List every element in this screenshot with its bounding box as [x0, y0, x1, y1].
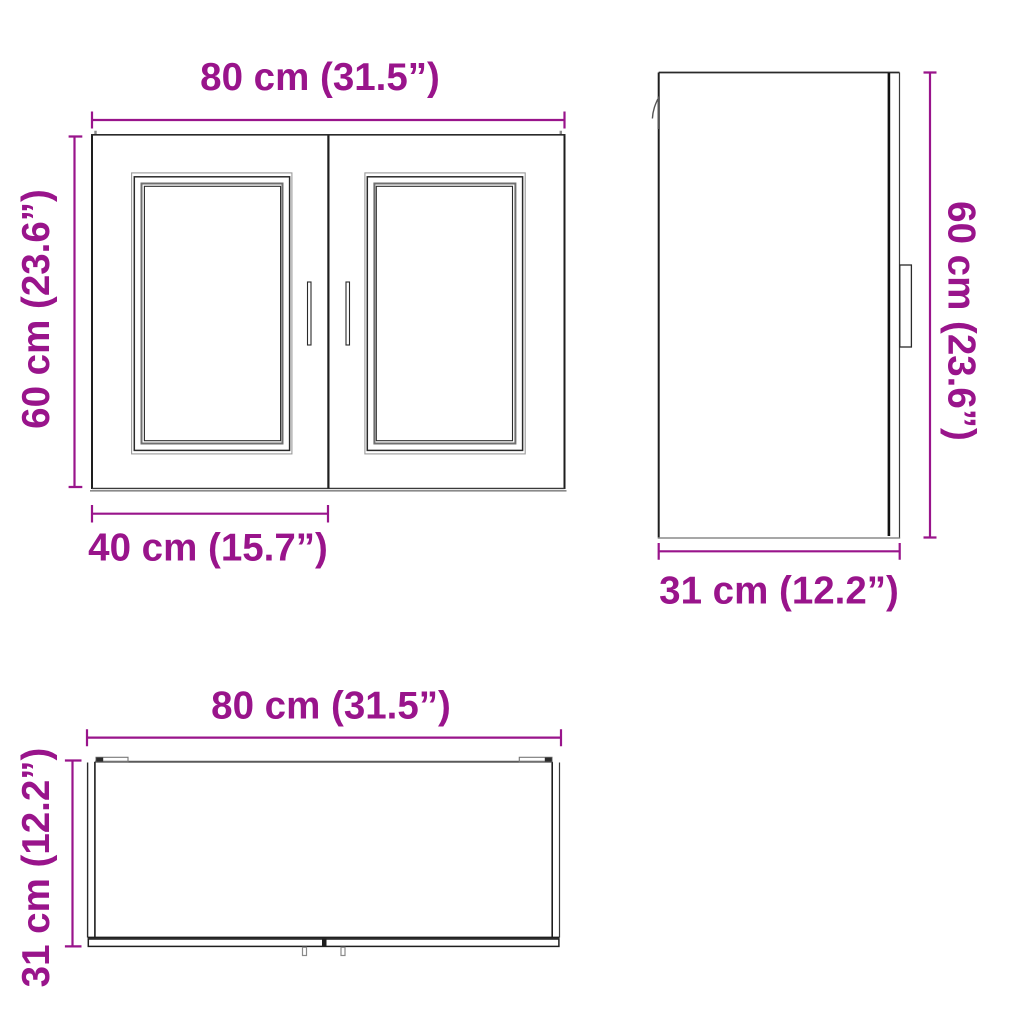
- svg-text:31 cm (12.2”): 31 cm (12.2”): [15, 748, 58, 988]
- svg-text:80 cm (31.5”): 80 cm (31.5”): [200, 56, 440, 99]
- svg-text:80 cm (31.5”): 80 cm (31.5”): [211, 685, 451, 728]
- svg-text:31 cm (12.2”): 31 cm (12.2”): [659, 570, 899, 613]
- svg-text:60 cm (23.6”): 60 cm (23.6”): [940, 201, 983, 441]
- svg-text:60 cm (23.6”): 60 cm (23.6”): [15, 189, 58, 429]
- svg-text:40 cm (15.7”): 40 cm (15.7”): [88, 527, 328, 570]
